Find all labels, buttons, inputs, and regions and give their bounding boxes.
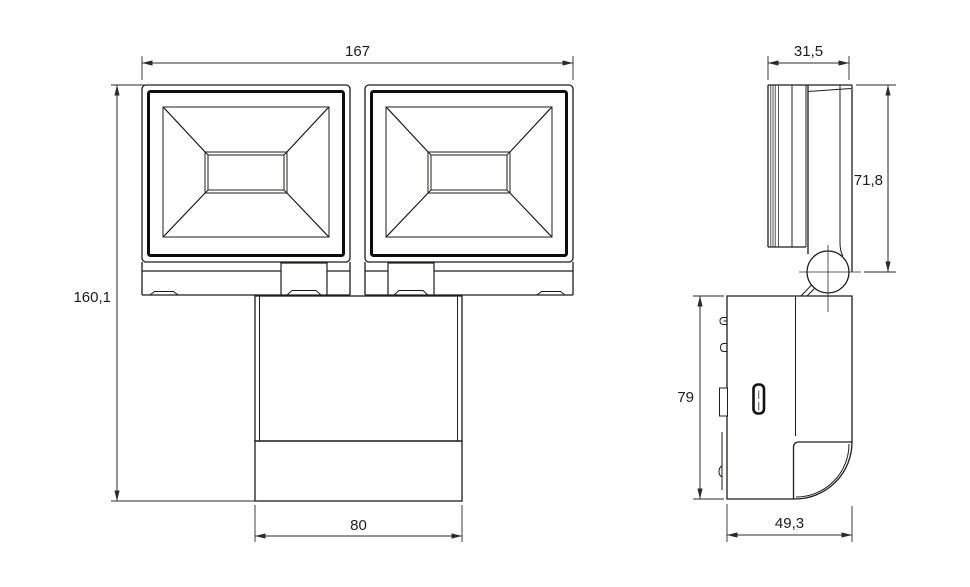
side-latch-strip — [719, 432, 722, 490]
corner-cover-inner-arc — [796, 444, 849, 497]
floodlight-head-right — [365, 85, 573, 295]
mounting-box-front-body — [255, 296, 462, 441]
led-panel-left-inner — [208, 155, 284, 190]
side-body-height-label: 79 — [677, 389, 694, 406]
head-right-outer — [365, 85, 573, 262]
led-panel-left-outer — [205, 152, 287, 193]
front-width-dimension: 167 — [142, 43, 573, 80]
mounting-box-side — [719, 296, 852, 499]
dimension-drawing-canvas: 167 160,1 80 — [0, 0, 970, 587]
side-body-depth-dimension: 49,3 — [727, 504, 852, 542]
head-side-body — [768, 85, 852, 247]
floodlight-head-side — [768, 85, 861, 312]
heatsink-fins — [771, 85, 779, 247]
side-mount-tab — [720, 388, 728, 416]
front-base-width-dimension: 80 — [255, 505, 462, 542]
side-head-height-label: 71,8 — [854, 172, 883, 189]
reflector-right — [386, 107, 552, 237]
mounting-box-front — [255, 296, 462, 501]
led-panel-right-outer — [428, 152, 510, 193]
front-height-label: 160,1 — [73, 289, 111, 306]
mounting-box-side-outline — [727, 296, 852, 499]
side-body-height-dimension: 79 — [677, 296, 724, 499]
page: 167 160,1 80 — [0, 0, 970, 587]
front-height-extension-lines — [111, 85, 258, 501]
led-panel-right-inner — [431, 155, 507, 190]
head-left-outer — [142, 85, 350, 262]
side-head-depth-dimension: 31,5 — [768, 43, 849, 80]
front-height-dimension: 160,1 — [73, 85, 258, 501]
reflector-left-facets — [163, 107, 329, 237]
head-side-lens-inner — [840, 85, 843, 256]
head-right-frame — [372, 92, 567, 256]
head-side-ribs — [792, 85, 806, 247]
side-body-depth-label: 49,3 — [775, 515, 804, 532]
front-base-label: 80 — [350, 517, 367, 534]
head-left-frame — [149, 92, 344, 256]
front-view: 167 160,1 80 — [73, 43, 573, 542]
reflector-right-facets — [386, 107, 552, 237]
floodlight-head-left — [142, 85, 350, 295]
side-view: 31,5 71,8 79 49,3 — [677, 43, 896, 542]
mounting-box-front-band — [255, 441, 462, 501]
front-width-label: 167 — [345, 43, 370, 60]
side-head-height-dimension: 71,8 — [854, 85, 896, 272]
side-clips — [720, 318, 727, 352]
side-head-depth-label: 31,5 — [794, 43, 823, 60]
reflector-left — [163, 107, 329, 237]
head-side-lens-top — [808, 89, 851, 92]
mounting-box-front-edges — [260, 296, 458, 441]
